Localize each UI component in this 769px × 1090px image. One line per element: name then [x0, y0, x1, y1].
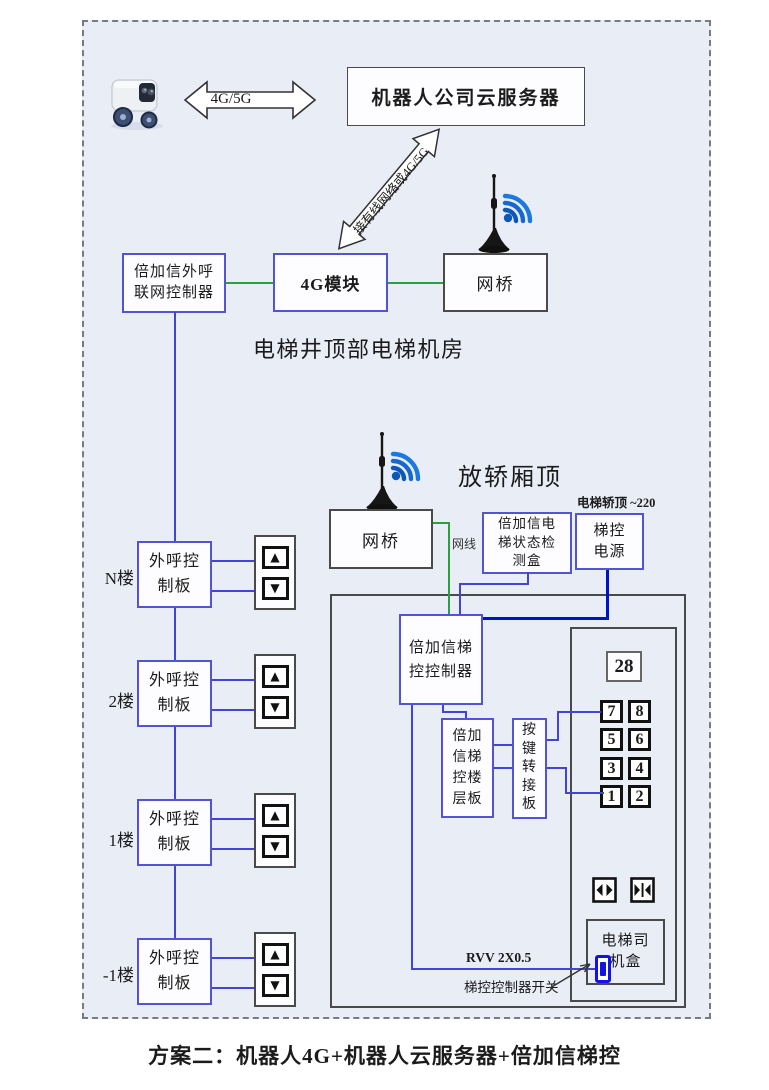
bridge-cabin-box: 网桥: [329, 509, 433, 569]
elevator-power-box: 梯控电源: [575, 513, 644, 570]
wire-segment: [565, 767, 567, 794]
up-icon: ▲: [270, 809, 279, 821]
elevator-button-2: 2: [628, 785, 651, 808]
down-icon: ▼: [270, 979, 279, 991]
switch-label: 梯控控制器开关: [464, 976, 559, 996]
down-button: ▼: [262, 696, 289, 719]
wire-segment: [557, 711, 559, 741]
floor-label-2: 2楼: [84, 687, 134, 712]
key-adapter-box: 按键转接板: [512, 718, 547, 819]
hall-button-panel: ▲ ▼: [254, 793, 296, 868]
elevator-button-8: 8: [628, 700, 651, 723]
wire-segment: [494, 767, 512, 769]
wire-segment: [212, 590, 254, 592]
wire-segment: [547, 767, 567, 769]
wire-segment: [388, 282, 443, 284]
elevator-button-1: 1: [600, 785, 623, 808]
annotation-arrow: [548, 957, 596, 991]
up-icon: ▲: [270, 948, 279, 960]
wire-segment: [212, 679, 254, 681]
hall-call-board: 外呼控制板: [137, 799, 212, 866]
elevator-button-4: 4: [628, 757, 651, 780]
wire-segment: [448, 522, 450, 614]
up-button: ▲: [262, 804, 289, 827]
cabin-title: 放轿厢顶: [458, 457, 562, 492]
elevator-button-6: 6: [628, 728, 651, 751]
wire-segment: [212, 957, 254, 959]
outcall-gateway-label: 倍加信外呼联网控制器: [132, 262, 216, 303]
down-icon: ▼: [270, 701, 279, 713]
antenna-wifi-icon: [472, 172, 536, 254]
wire-segment: [411, 705, 413, 970]
wire-segment: [212, 987, 254, 989]
elevator-button-5: 5: [600, 728, 623, 751]
machine-room-title: 电梯井顶部电梯机房: [253, 332, 465, 364]
wire-segment: [459, 583, 461, 614]
wire-segment: [212, 709, 254, 711]
hall-call-board: 外呼控制板: [137, 938, 212, 1005]
elevator-controller-box: 倍加信梯控控制器: [399, 614, 483, 705]
hall-call-board-label: 外呼控制板: [148, 947, 202, 997]
hall-button-panel: ▲ ▼: [254, 535, 296, 610]
hall-call-board: 外呼控制板: [137, 541, 212, 608]
key-adapter-label: 按键转接板: [521, 722, 538, 814]
scheme-diagram: 4G/5G 机器人公司云服务器 接有线网络或4G/5G 倍加信外呼联网控制器 4…: [0, 0, 769, 1090]
wire-segment: [557, 711, 601, 713]
wire-segment: [212, 560, 254, 562]
down-button: ▼: [262, 974, 289, 997]
hall-call-board-label: 外呼控制板: [148, 669, 202, 719]
down-button: ▼: [262, 835, 289, 858]
wire-segment: [606, 570, 609, 620]
floor-display: 28: [606, 651, 642, 682]
up-button: ▲: [262, 546, 289, 569]
outcall-gateway-box: 倍加信外呼联网控制器: [122, 253, 226, 313]
bridge-label: 网桥: [477, 270, 515, 295]
floor-label-1: 1楼: [84, 826, 134, 851]
link-label: 4G/5G: [195, 91, 267, 108]
up-button: ▲: [262, 943, 289, 966]
module-4g-box: 4G模块: [273, 253, 388, 312]
bridge-cabin-label: 网桥: [362, 527, 400, 552]
robot-icon: [106, 70, 168, 132]
wire-segment: [212, 818, 254, 820]
cable-label: 网线: [452, 535, 476, 552]
bridge-machine-room-box: 网桥: [443, 253, 548, 312]
status-detector-label: 倍加信电梯状态检测盒: [496, 515, 558, 571]
up-icon: ▲: [270, 670, 279, 682]
hall-button-panel: ▲ ▼: [254, 932, 296, 1007]
cable-spec-label: RVV 2X0.5: [466, 950, 531, 966]
up-icon: ▲: [270, 551, 279, 563]
cloud-server-label: 机器人公司云服务器: [371, 83, 560, 110]
wire-segment: [565, 792, 604, 794]
elevator-button-7: 7: [600, 700, 623, 723]
door-open-icon: [592, 877, 617, 903]
down-icon: ▼: [270, 582, 279, 594]
antenna-wifi-icon: [360, 430, 424, 512]
elevator-power-label: 梯控电源: [592, 521, 628, 562]
hall-call-board-label: 外呼控制板: [148, 808, 202, 858]
hall-call-board: 外呼控制板: [137, 660, 212, 727]
robot-cloud-link-arrow: 4G/5G: [183, 78, 317, 122]
cabin-power-note: 电梯轿顶 ~220: [577, 492, 655, 511]
status-detector-box: 倍加信电梯状态检测盒: [482, 512, 572, 574]
scheme-caption: 方案二：机器人4G+机器人云服务器+倍加信梯控: [0, 1040, 769, 1070]
floor-board-box: 倍加信梯控楼层板: [441, 718, 494, 818]
floor-board-label: 倍加信梯控楼层板: [452, 726, 484, 810]
floor-display-value: 28: [615, 656, 634, 678]
down-icon: ▼: [270, 840, 279, 852]
wire-segment: [465, 711, 467, 718]
down-button: ▼: [262, 577, 289, 600]
floor-label-n: N楼: [84, 564, 134, 589]
elevator-controller-label: 倍加信梯控控制器: [408, 636, 474, 684]
door-close-icon: [630, 877, 655, 903]
wire-segment: [442, 711, 467, 713]
up-button: ▲: [262, 665, 289, 688]
module-4g-label: 4G模块: [301, 270, 361, 295]
floor-label-minus1: -1楼: [84, 961, 134, 986]
cloud-server-box: 机器人公司云服务器: [347, 67, 585, 126]
hall-button-panel: ▲ ▼: [254, 654, 296, 729]
wire-segment: [226, 282, 273, 284]
wire-segment: [212, 848, 254, 850]
wire-segment: [494, 744, 512, 746]
wire-segment: [459, 583, 529, 585]
hall-call-board-label: 外呼控制板: [148, 550, 202, 600]
elevator-button-3: 3: [600, 757, 623, 780]
wire-segment: [483, 617, 609, 620]
controller-switch: [595, 955, 611, 983]
